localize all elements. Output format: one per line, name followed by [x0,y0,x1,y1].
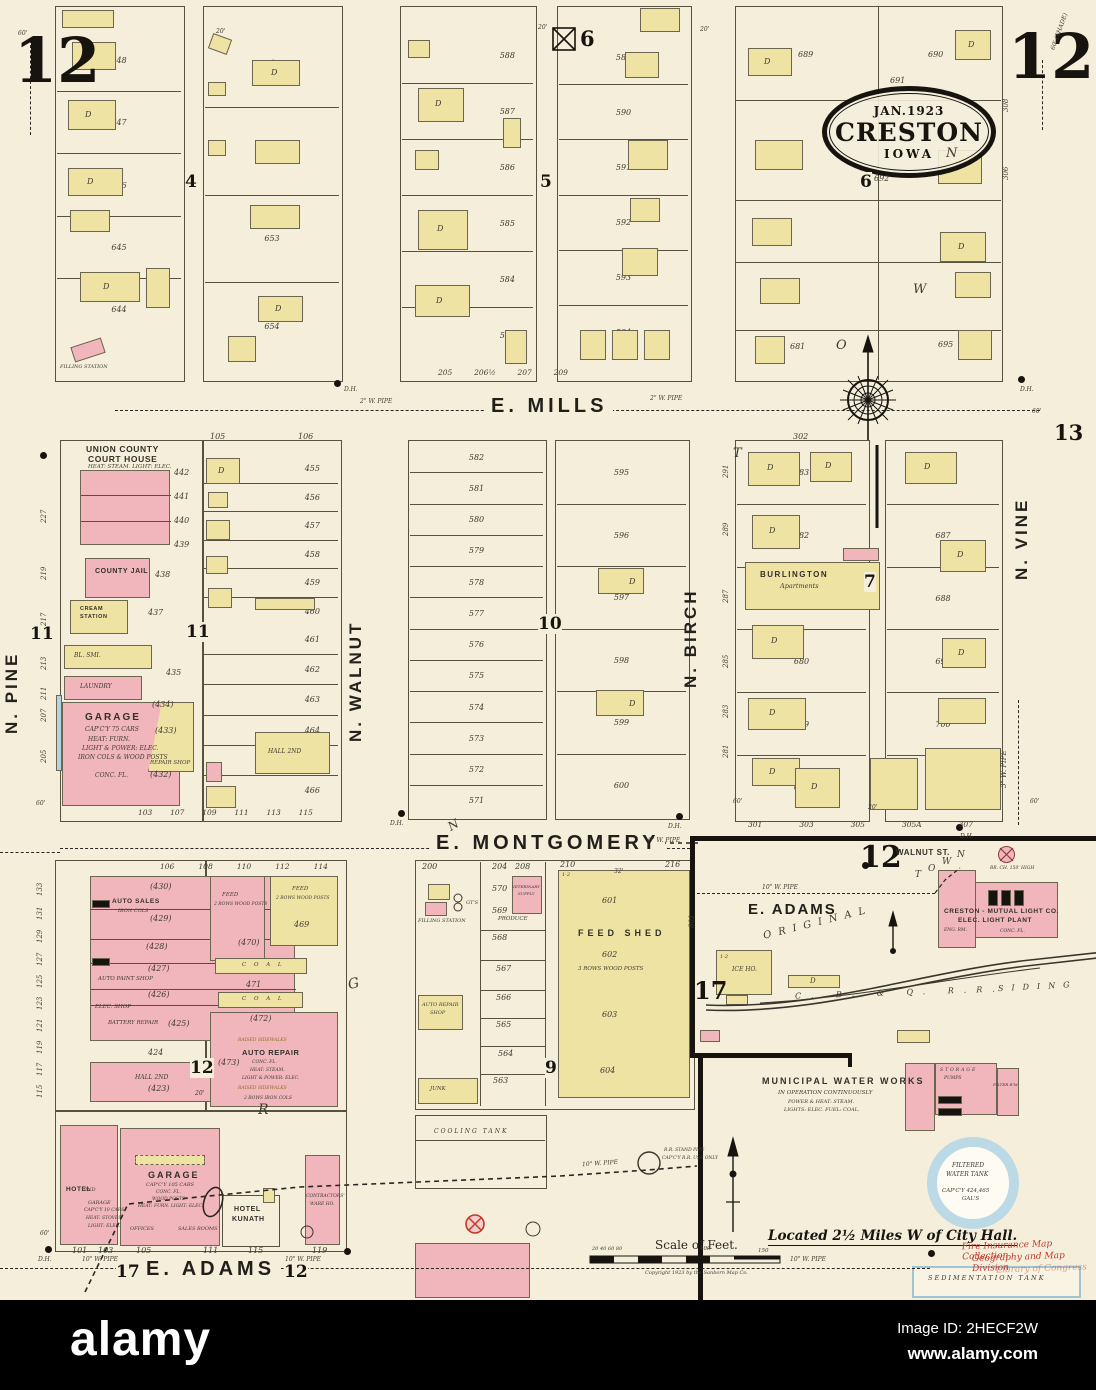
garage-105-label: GARAGE [148,1170,200,1180]
building-number: (426) [148,990,170,999]
building-number: 438 [155,570,170,579]
building [208,140,226,156]
cooling-tank-line [415,1140,545,1141]
width-20: 20' [700,26,709,33]
feed-shed-12: 1-2 [562,872,570,878]
building [208,588,232,608]
dh-dot [398,810,405,817]
hall-2nd-label: HALL 2ND [135,1074,168,1081]
building-number: (470) [238,938,260,947]
page-number-top-right: 12 [1008,26,1094,88]
building-number: 603 [602,1010,617,1019]
block-number-17: 17 [694,976,727,1005]
dh-label: D.H. [1020,386,1034,393]
plat-letter-w: W [913,282,926,297]
building [958,330,992,360]
block-number-11: 11 [186,622,210,642]
edge-lot-number: 127 [36,953,44,966]
dwelling: D [795,768,840,808]
building [505,330,527,364]
building [206,520,230,540]
north-arrow-small [889,912,897,954]
edge-lot-number: 227 [40,510,48,523]
dwelling: D [68,168,123,196]
building-number: 437 [148,608,163,617]
garage-floor: CONC. FL. [95,772,128,779]
block-10-left-lots: 582581580579578577576575574573572571 [410,442,543,816]
building [415,1243,530,1298]
building [208,492,228,508]
courthouse-line [81,495,171,496]
standpipe-label-2: CAP'C'Y R.R. USE ONLY [662,1156,718,1161]
filling-station-label: FILLING STATION [418,918,466,924]
building [925,748,1001,810]
plat-letter-o: O [836,338,847,353]
block-number-11-edge: 11 [30,624,54,644]
lot-801: 801 [688,915,696,928]
edge-lot-number: 123 [36,997,44,1010]
repair-shop-label: REPAIR SHOP [150,760,190,766]
width-20: 20' [538,24,547,31]
dwelling: D [418,88,464,122]
building-number: 564 [498,1049,513,1058]
contractors-warehouse [305,1155,340,1245]
scale-150: 150 [758,1248,769,1254]
cooling-tank-outline [415,1115,547,1189]
edge-lot-number: 133 [36,883,44,896]
plat-boundary [848,1053,852,1067]
block-12-top-lots: 106108110112114 [160,862,328,871]
waterworks-sub-1: IN OPERATION CONTINUOUSLY [778,1090,872,1096]
dh-label: D.H. [344,386,358,393]
edge-lot-number: 287 [722,590,730,603]
building [628,140,668,170]
dwelling: D [258,296,303,322]
lot-number: 111 [203,1246,218,1255]
dwelling: D [752,758,800,786]
block-10-right-lots: 595596597598599600 [557,442,686,816]
elec-shop-label: ELEC. SHOP [95,1004,131,1010]
width-32: 32' [614,868,623,875]
block-9-line [480,990,545,991]
dwelling: D [752,515,800,549]
dwelling: D [418,210,468,250]
building-number: (428) [146,942,168,951]
courthouse-title-3: HEAT: STEAM. LIGHT: ELEC. [88,464,172,470]
width-60: 60' [40,1230,49,1237]
building-number: 435 [166,668,181,677]
block-9-line [480,960,545,961]
dwelling-d: D [810,977,816,985]
block-6-alley [878,6,879,380]
garage-small-light: LIGHT: ELEC. [88,1224,120,1229]
dwelling: D [748,48,792,76]
pipe-label: 10" W. PIPE [82,1256,118,1263]
garage-105-heat: HEAT: FURN. LIGHT: ELEC. [138,1204,203,1209]
feed-building [255,598,315,610]
iron-cols-label-2: 2 ROWS IRON COLS [244,1096,292,1101]
auto-repair-shop-label-1: AUTO REPAIR [422,1002,459,1008]
street-e-montgomery: E. MONTGOMERY [430,832,665,855]
town-letter: N [957,850,965,860]
building-number: 692 [874,174,889,183]
edge-lot-number: 207 [40,709,48,722]
pipe-label: 10" W. PIPE [762,884,798,891]
dwelling: D [905,452,957,484]
sanborn-map-sheet: 648647646645644 649652653654 58858758658… [0,0,1096,1300]
building-number: 602 [602,950,617,959]
waterworks-title: MUNICIPAL WATER WORKS [762,1076,925,1086]
garage-light: LIGHT & POWER: ELEC. [82,745,159,752]
hall-label: HALL 2ND [268,748,301,755]
pipe-label: 2" W. PIPE [360,398,392,405]
edge-lot-number: 125 [36,975,44,988]
alamy-image-id: Image ID: 2HECF2W [897,1320,1038,1337]
block-number-17-street: 17 [116,1262,140,1282]
creston-date-stamp: JAN.1923 CRESTON IOWA [822,86,996,178]
building [415,150,439,170]
garage-label: GARAGE [85,712,141,723]
building-number: 471 [246,980,261,989]
stamp-inner-ring [829,93,989,171]
street-n-pine: N. PINE [2,652,22,734]
screenshot: 648647646645644 649652653654 58858758658… [0,0,1096,1390]
lot-number: 101 [72,1246,87,1255]
tank-label-4: GAL'S [962,1196,979,1202]
building [408,40,430,58]
line [91,939,296,940]
auto-repair-label: AUTO REPAIR [242,1048,300,1057]
courthouse-title-2: COURT HOUSE [88,454,157,464]
hotel-kunath-2: KUNATH [232,1216,265,1223]
width-60: 60' [733,798,742,805]
conc-fl-label: CONC. FL. [252,1060,277,1065]
feed-posts-2: 2 ROWS WOOD POSTS [276,896,329,901]
building [938,698,986,724]
alamy-url: www.alamy.com [908,1344,1038,1364]
building-number: 568 [492,933,507,942]
dwelling: D [942,638,986,668]
edge-lot-number: 285 [722,655,730,668]
block-number-9: 9 [545,1058,557,1078]
garage-heat: HEAT: FURN. [88,736,130,743]
storage-label: STORAGE [940,1068,977,1073]
scale-ticks: 20 40 60 80 [592,1246,622,1252]
dh-label: D.H. [390,820,404,827]
building [263,1188,275,1203]
lot-number: 115 [248,1246,263,1255]
building-number: 440 [174,516,189,525]
warehouse-label: WARE HO. [310,1202,335,1207]
coal-label-2: C O A L [242,996,285,1002]
block-9-line [480,1018,545,1019]
building-number: 569 [492,906,507,915]
dh-dot [862,862,869,869]
building [612,330,638,360]
block-9-line [480,1046,545,1047]
building [255,140,300,164]
building [428,884,450,900]
boiler [938,1108,962,1116]
lot-number: 302 [793,432,808,441]
plat-letter-n: N [946,146,957,161]
auto-sales-label: AUTO SALES [112,898,160,905]
block-6-line [735,200,1001,201]
building [146,268,170,308]
feed-label-1: FEED [222,892,238,898]
block-7-bottom-lots: 301303305305A307 [748,820,973,829]
auto-repair-shop-label-2: SHOP [430,1010,445,1016]
lot-number: 106 [298,432,313,441]
dwelling: D [748,452,800,486]
block-number-5: 5 [540,172,552,192]
building-number: 601 [602,896,617,905]
county-jail-label: COUNTY JAIL [95,568,148,575]
dh-dot [344,1248,351,1255]
block-9-divider [480,862,481,1106]
building-number: (434) [152,700,174,709]
dwelling: D [415,285,470,317]
veterinary-label-2: SUPPLY [518,891,535,896]
edge-lot-number: 211 [40,687,48,700]
building-number: 565 [496,1020,511,1029]
block-number-6a: 6 [580,26,595,51]
block-9-line [480,930,545,931]
plat-boundary [690,1053,852,1058]
building [870,758,918,810]
edge-lot-number: 289 [722,523,730,536]
edge-lot-number: 308 [1002,99,1010,112]
building-number: (427) [148,964,170,973]
building-number: (423) [148,1084,170,1093]
garage-small-heat: HEAT: STOVES [86,1216,121,1221]
filling-station-label-b4: FILLING STATION [60,364,108,370]
sales-rooms-label: SALES ROOMS [178,1226,218,1232]
plat-letter-t: T [733,446,742,461]
dwelling: D [206,458,240,484]
building-number: 570 [492,884,507,893]
building [625,52,659,78]
dh-label: D.H. [668,823,682,830]
building [640,8,680,32]
edge-lot-number: 119 [36,1041,44,1054]
lot-number: 119 [312,1246,327,1255]
street-e-mills: E. MILLS [485,395,613,418]
garage-105-floor: CONC. FL. [156,1190,181,1195]
dwelling: D [748,698,806,730]
block-6-line [735,262,1001,263]
lot-number: 216 [665,860,680,869]
gas-tanks-label: GT'S [466,900,478,906]
waterworks-sub-2: POWER & HEAT: STEAM. [788,1099,854,1105]
ice-house-label: ICE HO. [732,966,757,973]
dwelling: D [598,568,644,594]
building [206,762,222,782]
county-jail-building [85,558,150,598]
lot-number: 105 [136,1246,151,1255]
width-60: 60' [1030,798,1039,805]
building-number: 469 [294,920,309,929]
veterinary-label-1: VETERINARY [512,884,540,889]
line [91,989,296,990]
water-feature [56,695,62,771]
burlington-sub: Apartments [780,582,819,590]
street-symbol [526,1222,540,1236]
junk-building [418,1078,478,1104]
courthouse-line [81,521,171,522]
building-number: 681 [790,342,805,351]
garage-small-label: GARAGE [88,1200,111,1206]
feed-shed-posts: 3 ROWS WOOD POSTS [578,966,643,972]
edge-lot-number: 129 [36,930,44,943]
town-letter: T [915,870,921,880]
building-number: 689 [798,50,813,59]
scale-of-feet-label: Scale of Feet. [655,1238,738,1252]
block-number-10: 10 [538,614,562,634]
building-number: 690 [928,50,943,59]
block-number-7: 7 [864,572,876,592]
hotel-kunath-1: HOTEL [234,1206,261,1213]
iron-cols-label: IRON COLS [118,908,148,914]
building [250,205,300,229]
feed-shed-building [558,870,690,1098]
building [755,336,785,364]
building-number: (430) [150,882,172,891]
edge-lot-number: 217 [40,613,48,626]
street-n-walnut: N. WALNUT [346,621,366,742]
feed-shed-label: FEED SHED [578,928,666,938]
alley-letter-g: G [346,975,360,993]
edge-lot-number: 115 [36,1085,44,1098]
building [843,548,879,561]
garage-small-cap: CAP'C'Y 10 CARS [84,1208,124,1213]
width-20: 20' [868,804,877,811]
filling-station-building [425,902,447,916]
skylight [135,1155,205,1165]
chimney-symbol [998,846,1015,863]
building-number: 442 [174,468,189,477]
waterworks-building [997,1068,1019,1116]
building-number: 424 [148,1048,163,1057]
dwelling: D [252,60,300,86]
dh-dot [334,380,341,387]
width-20: 20' [195,1090,204,1097]
raised-sidewalk-label-2: RAISED SIDEWALKS [238,1086,287,1091]
dh-label: D.H. [960,833,974,840]
waterworks-sub-3: LIGHTS: ELEC. FUEL: COAL. [784,1107,860,1113]
building-number: 563 [493,1076,508,1085]
town-letter: O [928,864,935,874]
tank-label-2: WATER TANK [946,1171,988,1178]
block-number-12-street: 12 [284,1262,308,1282]
building-number: 567 [496,964,511,973]
waterworks-building [905,1063,935,1131]
page-number-top-left: 12 [14,30,100,92]
water-pipe [0,852,60,853]
window [1014,890,1024,906]
cream-station-label-1: CREAM [80,606,103,612]
plat-boundary [690,836,695,1058]
building [644,330,670,360]
pumps-label: PUMPS [944,1076,961,1081]
sedimentation-label: SEDIMENTATION TANK [928,1274,1046,1282]
edge-lot-number: 283 [722,705,730,718]
dh-label: D.H. [38,1256,52,1263]
building-number: (472) [250,1014,272,1023]
building-number: 604 [600,1066,615,1075]
alamy-logo: alamy [70,1312,211,1367]
pipe-label: 6" W. PIPE [648,837,680,844]
north-arrow-tall [726,1138,740,1232]
burlington-label: BURLINGTON [760,570,828,579]
building [955,272,991,298]
window [988,890,998,906]
block-5-right-lots: 589590591592593594 [559,30,688,360]
filter-label: FILTER R'M [993,1082,1018,1087]
pipe-label: 10" W. PIPE [582,1159,618,1168]
block-number-6b: 6 [860,172,872,192]
building [70,210,110,232]
tank-label-3: CAP'C'Y 424,465 [942,1188,989,1194]
tank-label-1: FILTERED [952,1162,984,1169]
building [897,1030,930,1043]
building-number: (429) [150,914,172,923]
width-60: 60' [1032,408,1041,415]
edge-lot-number: 131 [36,907,44,920]
auto-paint-label: AUTO PAINT SHOP [98,976,153,982]
building [228,336,256,362]
feed-building-1 [210,876,265,961]
produce-label: PRODUCE [498,916,528,922]
building [700,1030,720,1042]
feed-posts-1: 2 ROWS WOOD POSTS [214,902,267,907]
building [755,140,803,170]
building-number: 439 [174,540,189,549]
block-9-line [480,1074,545,1075]
block-number-12-inset: 12 [860,840,902,875]
siding-label: SIDING [998,980,1078,993]
dwelling: D [810,452,852,482]
conc-fl-label: CONC. FL. [1000,929,1025,934]
block-number-12: 12 [190,1058,214,1078]
blacksmith-label: BL. SMI. [74,652,101,659]
plat-boundary [698,1058,703,1300]
street-walnut-st: WALNUT ST. [896,848,950,857]
ice-house-stories: 1-2 [720,954,728,960]
dwelling: D [68,100,116,130]
building [208,82,226,96]
lot-number: 208 [515,862,530,871]
dwelling: D [596,690,644,716]
building [630,198,660,222]
building-number: 691 [890,76,905,85]
building-number: 566 [496,993,511,1002]
width-20: 20' [216,28,225,35]
block-11-bottom-lots: 103107109111113115 [138,808,313,817]
lot-number: 105 [210,432,225,441]
cream-station-label-2: STATION [80,614,108,620]
standpipe-label-1: R.R. STAND PIPE [664,1148,704,1153]
lot-number: 103 [98,1246,113,1255]
stairs [92,900,110,908]
building-number: (473) [218,1058,240,1067]
filtered-water-tank [927,1137,1019,1229]
feed-label-2: FEED [292,886,308,892]
dwelling: D [80,272,140,302]
page-ref-13: 13 [1054,420,1083,445]
pipe-label-vertical: 3" W. PIPE [1000,750,1008,788]
laundry-label: LAUNDRY [80,683,112,690]
